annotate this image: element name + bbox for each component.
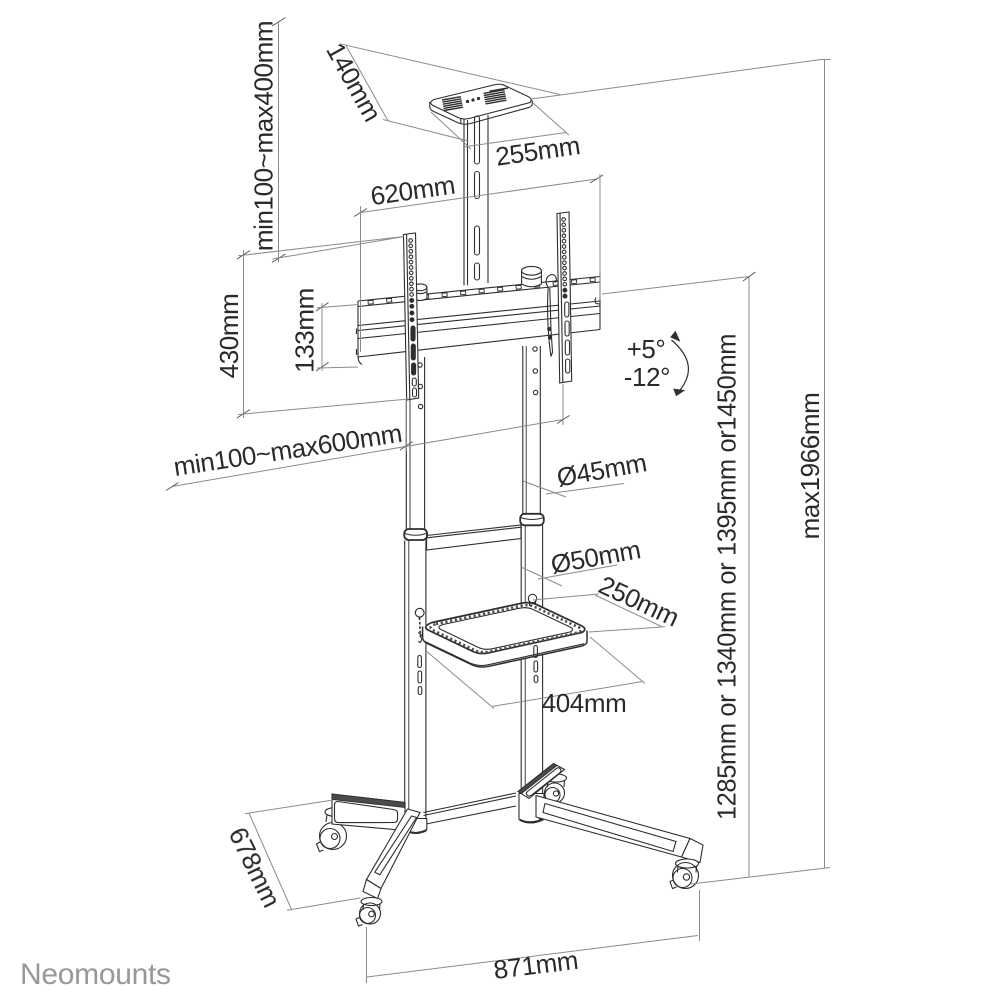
svg-text:255mm: 255mm	[494, 130, 582, 171]
svg-text:min100~max400mm: min100~max400mm	[248, 21, 278, 251]
svg-text:+5°: +5°	[627, 334, 666, 364]
svg-text:678mm: 678mm	[223, 822, 287, 911]
svg-text:Neomounts: Neomounts	[20, 958, 171, 991]
svg-text:404mm: 404mm	[542, 688, 627, 718]
svg-text:1285mm or 1340mm or 1395mm or1: 1285mm or 1340mm or 1395mm or1450mm	[714, 334, 742, 820]
svg-text:-12°: -12°	[624, 362, 670, 392]
svg-text:430mm: 430mm	[214, 294, 244, 379]
svg-text:min100~max600mm: min100~max600mm	[172, 418, 404, 482]
svg-text:871mm: 871mm	[492, 945, 580, 985]
svg-text:250mm: 250mm	[594, 570, 683, 633]
svg-text:Ø45mm: Ø45mm	[554, 447, 648, 492]
svg-text:Ø50mm: Ø50mm	[548, 534, 642, 579]
svg-text:133mm: 133mm	[289, 288, 319, 373]
svg-text:620mm: 620mm	[369, 170, 457, 211]
svg-text:140mm: 140mm	[320, 38, 387, 127]
svg-text:max1966mm: max1966mm	[795, 393, 825, 540]
